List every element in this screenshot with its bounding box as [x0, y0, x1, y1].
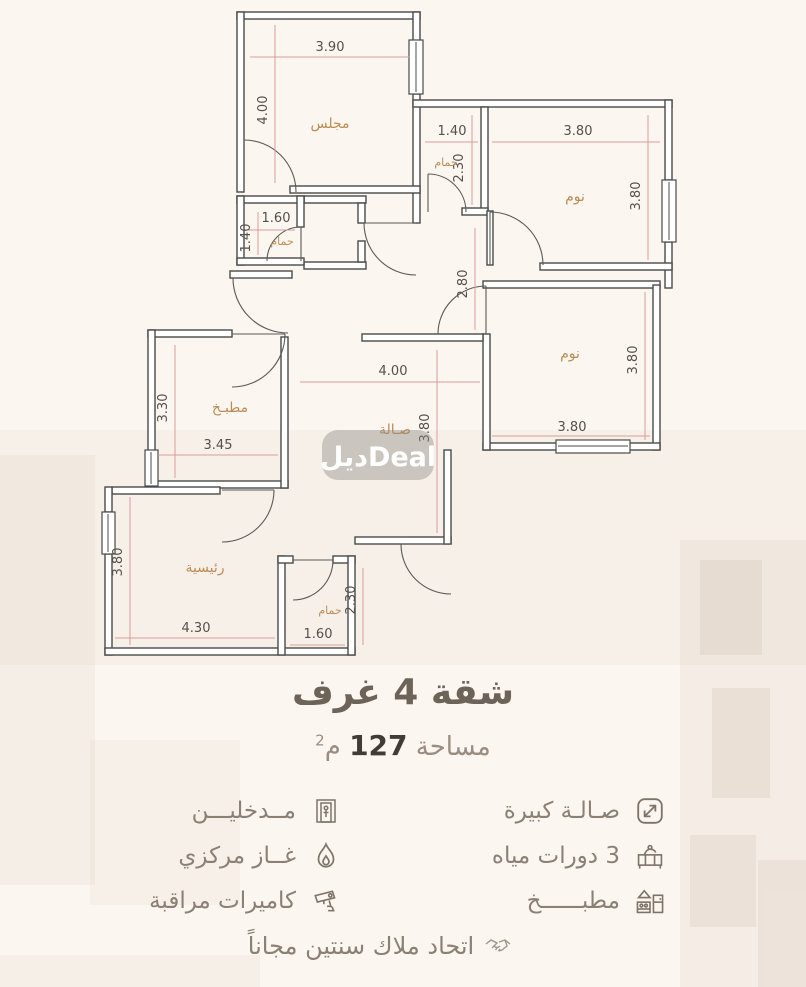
- area-unit-sup: 2: [315, 731, 325, 749]
- room-label-bath3: حمام: [318, 604, 341, 617]
- feature-label: كاميرات مراقبة: [149, 888, 296, 914]
- feature-label: صـالـة كبيرة: [504, 798, 620, 824]
- faded-photo-patch: [758, 860, 806, 987]
- dim-bath3-height: 2.30: [344, 586, 359, 615]
- dim-hall-width: 2.80: [456, 270, 471, 299]
- features-left-column: مــدخليـــن غــاز مركزي: [94, 793, 344, 919]
- dim-bath2-width: 1.60: [262, 211, 291, 226]
- room-label-kitchen: مطبـخ: [212, 400, 248, 416]
- page-title: شقة 4 غرف: [0, 672, 806, 713]
- dim-master-height: 3.80: [111, 548, 126, 577]
- footnote: اتحاد ملاك سنتين مجاناً: [0, 932, 760, 960]
- floor-plan: 3.90 4.00 1.40 2.30 3.80 3.80 1.60 1.40 …: [0, 0, 806, 665]
- area-unit: م: [325, 732, 341, 762]
- dim-kitchen-height: 3.30: [156, 394, 171, 423]
- dim-living-width: 4.00: [379, 364, 408, 379]
- dim-bed2-height: 3.80: [626, 346, 641, 375]
- room-label-bath1: حمام: [434, 156, 457, 169]
- feature-label: مــدخليـــن: [192, 798, 296, 824]
- dim-bed1-width: 3.80: [564, 124, 593, 139]
- dim-majlis-width: 3.90: [316, 40, 345, 55]
- entrance-icon: [308, 793, 344, 829]
- feature-large-hall: صـالـة كبيرة: [418, 793, 668, 829]
- gas-icon: [308, 838, 344, 874]
- feature-central-gas: غــاز مركزي: [94, 838, 344, 874]
- room-label-bath2: حمام: [270, 235, 293, 248]
- feature-kitchen: مطبــــــخ: [418, 883, 668, 919]
- feature-label: 3 دورات مياه: [492, 843, 620, 869]
- feature-bathrooms: 3 دورات مياه: [418, 838, 668, 874]
- faded-photo-patch: [690, 835, 756, 927]
- sink-icon: [632, 838, 668, 874]
- dim-kitchen-width: 3.45: [204, 438, 233, 453]
- title-block: شقة 4 غرف مساحة 127 م2: [0, 672, 806, 762]
- dim-bath1-width: 1.40: [438, 124, 467, 139]
- room-label-master: رئيسية: [185, 560, 224, 576]
- dim-bed1-height: 3.80: [629, 182, 644, 211]
- watermark: ديلDeal: [320, 430, 436, 480]
- footnote-text: اتحاد ملاك سنتين مجاناً: [248, 932, 474, 960]
- feature-two-entrances: مــدخليـــن: [94, 793, 344, 829]
- feature-cctv: كاميرات مراقبة: [94, 883, 344, 919]
- area-text: مساحة 127 م2: [0, 729, 806, 762]
- floor-plan-svg: 3.90 4.00 1.40 2.30 3.80 3.80 1.60 1.40 …: [0, 0, 806, 665]
- camera-icon: [308, 883, 344, 919]
- feature-label: مطبــــــخ: [527, 888, 620, 914]
- room-label-bed1: نوم: [565, 189, 585, 205]
- dim-master-width: 4.30: [182, 621, 211, 636]
- dim-majlis-height: 4.00: [256, 96, 271, 125]
- dim-bed2-width: 3.80: [558, 420, 587, 435]
- handshake-icon: [484, 932, 512, 960]
- watermark-text: ديلDeal: [320, 442, 436, 473]
- feature-label: غــاز مركزي: [178, 843, 296, 869]
- room-label-majlis: مجلس: [310, 116, 349, 132]
- features-right-column: صـالـة كبيرة 3 دورات مياه: [418, 793, 668, 919]
- dim-bath3-width: 1.60: [304, 627, 333, 642]
- expand-icon: [632, 793, 668, 829]
- area-value: 127: [349, 729, 407, 762]
- kitchen-icon: [632, 883, 668, 919]
- dim-bath2-height: 1.40: [239, 224, 254, 253]
- screenshot-root: 3.90 4.00 1.40 2.30 3.80 3.80 1.60 1.40 …: [0, 0, 806, 987]
- area-prefix: مساحة: [416, 732, 491, 762]
- room-label-bed2: نوم: [560, 346, 580, 362]
